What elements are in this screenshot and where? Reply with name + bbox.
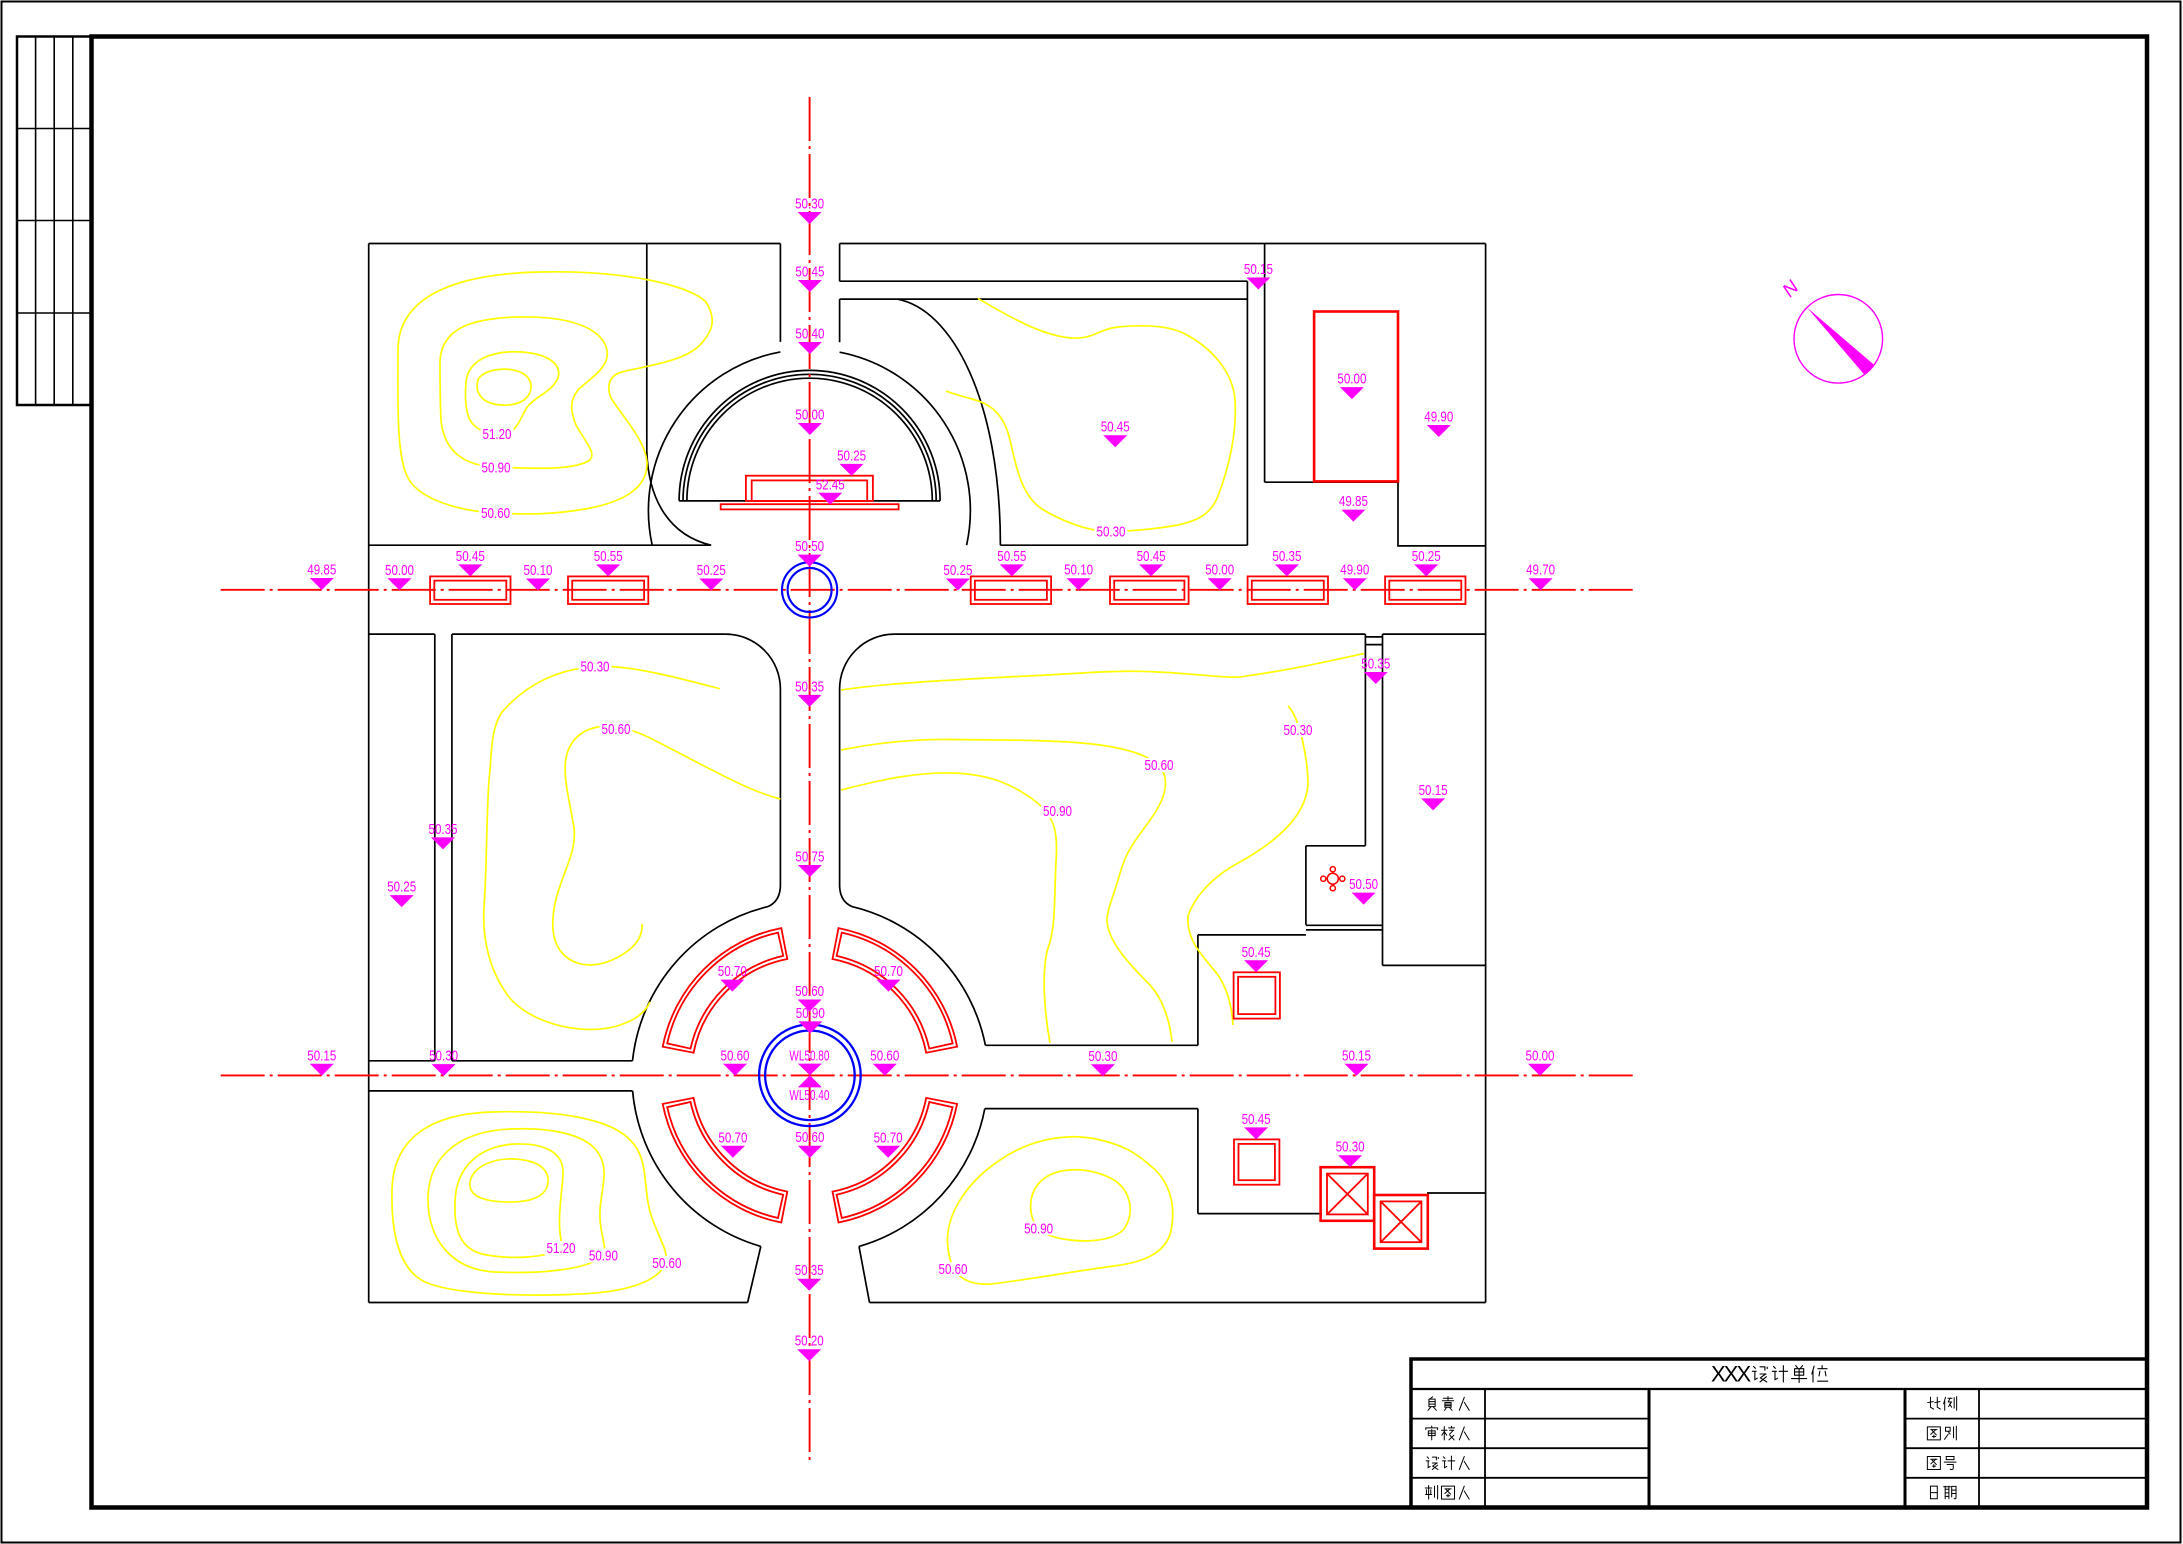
svg-text:50.45: 50.45	[795, 264, 824, 281]
svg-text:50.30: 50.30	[795, 196, 824, 213]
svg-text:X: X	[1737, 1362, 1752, 1387]
svg-text:50.60: 50.60	[481, 505, 510, 522]
svg-text:50.90: 50.90	[796, 1005, 825, 1022]
svg-text:50.60: 50.60	[939, 1261, 968, 1278]
svg-text:50.45: 50.45	[1242, 1111, 1271, 1128]
svg-text:50.30: 50.30	[1088, 1048, 1117, 1065]
svg-text:50.30: 50.30	[581, 659, 610, 676]
svg-text:50.60: 50.60	[795, 1129, 824, 1146]
svg-text:50.55: 50.55	[594, 548, 623, 565]
svg-text:50.90: 50.90	[482, 460, 511, 477]
svg-text:49.90: 49.90	[1424, 409, 1453, 426]
svg-text:50.45: 50.45	[456, 548, 485, 565]
svg-text:50.45: 50.45	[1101, 419, 1130, 436]
svg-text:50.15: 50.15	[1419, 782, 1448, 799]
svg-text:50.60: 50.60	[870, 1047, 899, 1064]
svg-text:50.30: 50.30	[1336, 1139, 1365, 1156]
svg-text:50.00: 50.00	[385, 562, 414, 579]
svg-text:50.50: 50.50	[795, 538, 824, 555]
svg-text:50.60: 50.60	[652, 1255, 681, 1272]
svg-text:50.15: 50.15	[1244, 261, 1273, 278]
svg-text:49.85: 49.85	[307, 562, 336, 579]
svg-text:50.90: 50.90	[589, 1248, 618, 1265]
svg-text:49.90: 49.90	[1340, 562, 1369, 579]
svg-text:50.10: 50.10	[1064, 562, 1093, 579]
svg-text:50.45: 50.45	[1137, 548, 1166, 565]
svg-text:51.20: 51.20	[483, 426, 512, 443]
svg-text:50.30: 50.30	[1284, 722, 1313, 739]
svg-text:50.35: 50.35	[1361, 656, 1390, 673]
svg-text:WL50.80: WL50.80	[789, 1048, 829, 1065]
svg-text:50.70: 50.70	[874, 963, 903, 980]
svg-text:50.30: 50.30	[1097, 524, 1126, 541]
svg-text:50.10: 50.10	[524, 562, 553, 579]
svg-text:51.20: 51.20	[547, 1240, 576, 1257]
svg-text:50.25: 50.25	[943, 562, 972, 579]
svg-text:50.60: 50.60	[602, 721, 631, 738]
svg-text:50.60: 50.60	[1145, 757, 1174, 774]
svg-text:50.60: 50.60	[721, 1047, 750, 1064]
svg-text:50.45: 50.45	[1242, 944, 1271, 961]
svg-text:50.00: 50.00	[1337, 371, 1366, 388]
svg-text:50.00: 50.00	[795, 407, 824, 424]
svg-text:50.25: 50.25	[387, 879, 416, 896]
svg-text:50.60: 50.60	[795, 983, 824, 1000]
svg-text:50.25: 50.25	[697, 562, 726, 579]
svg-text:50.70: 50.70	[718, 1129, 747, 1146]
svg-text:52.45: 52.45	[816, 476, 845, 493]
svg-text:49.70: 49.70	[1526, 562, 1555, 579]
svg-text:50.00: 50.00	[1205, 562, 1234, 579]
svg-text:50.40: 50.40	[795, 326, 824, 343]
svg-text:WL50.40: WL50.40	[789, 1087, 829, 1104]
svg-text:50.35: 50.35	[795, 678, 824, 695]
svg-text:50.20: 50.20	[795, 1333, 824, 1350]
svg-text:50.35: 50.35	[795, 1262, 824, 1279]
svg-text:50.00: 50.00	[1526, 1047, 1555, 1064]
svg-text:50.90: 50.90	[1043, 803, 1072, 820]
svg-text:50.75: 50.75	[795, 849, 824, 866]
svg-text:50.90: 50.90	[1024, 1220, 1053, 1237]
svg-text:50.35: 50.35	[429, 821, 458, 838]
svg-text:50.70: 50.70	[874, 1129, 903, 1146]
svg-text:50.25: 50.25	[837, 447, 866, 464]
svg-text:50.70: 50.70	[718, 963, 747, 980]
svg-text:50.25: 50.25	[1412, 548, 1441, 565]
svg-text:50.50: 50.50	[1349, 876, 1378, 893]
svg-text:50.30: 50.30	[429, 1048, 458, 1065]
svg-text:50.15: 50.15	[307, 1047, 336, 1064]
svg-text:50.15: 50.15	[1342, 1047, 1371, 1064]
svg-text:50.35: 50.35	[1272, 548, 1301, 565]
svg-text:49.85: 49.85	[1339, 493, 1368, 510]
svg-text:50.55: 50.55	[997, 548, 1026, 565]
